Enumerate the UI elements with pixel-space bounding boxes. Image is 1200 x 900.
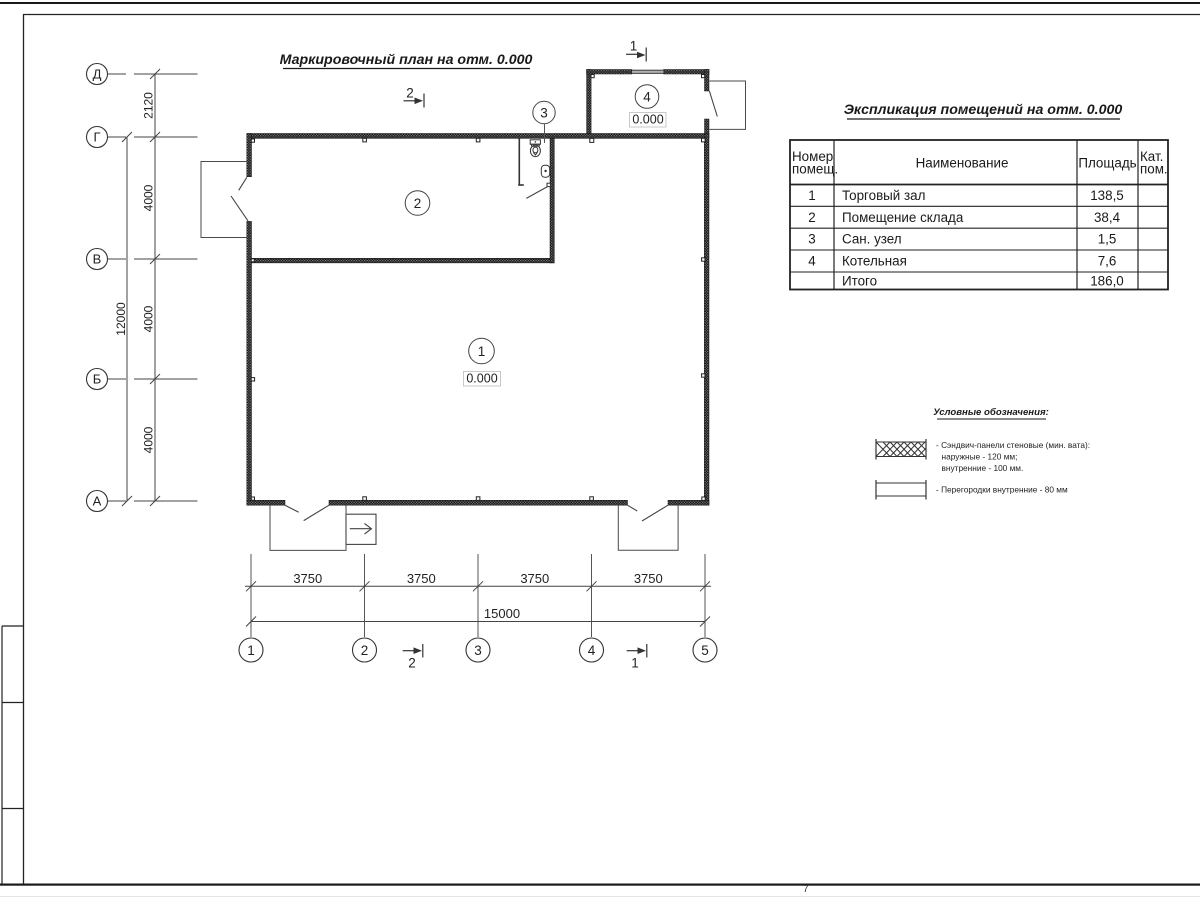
svg-text:3: 3 xyxy=(474,643,482,658)
svg-text:Торговый зал: Торговый зал xyxy=(842,188,925,203)
svg-text:1: 1 xyxy=(808,188,815,203)
svg-text:7: 7 xyxy=(803,884,809,895)
svg-text:2120: 2120 xyxy=(142,92,156,119)
svg-text:5: 5 xyxy=(701,643,709,658)
svg-text:2: 2 xyxy=(414,196,422,211)
svg-text:1: 1 xyxy=(630,39,638,54)
svg-text:1: 1 xyxy=(478,344,486,359)
svg-text:1: 1 xyxy=(247,643,255,658)
svg-text:Маркировочный план на отм. 0.0: Маркировочный план на отм. 0.000 xyxy=(280,52,533,68)
svg-text:4: 4 xyxy=(643,89,651,104)
svg-text:4: 4 xyxy=(808,254,816,269)
svg-text:Экспликация помещений на отм.: Экспликация помещений на отм. 0.000 xyxy=(844,102,1123,118)
svg-text:0.000: 0.000 xyxy=(632,113,663,127)
svg-text:3: 3 xyxy=(808,232,815,247)
svg-text:3750: 3750 xyxy=(520,571,549,586)
svg-text:3750: 3750 xyxy=(293,571,322,586)
svg-text:пом.: пом. xyxy=(1140,162,1168,177)
svg-text:4000: 4000 xyxy=(142,426,156,453)
svg-text:2: 2 xyxy=(406,86,414,101)
svg-text:2: 2 xyxy=(361,643,369,658)
svg-text:2: 2 xyxy=(408,656,416,671)
svg-text:наружные - 120 мм;: наружные - 120 мм; xyxy=(942,452,1018,462)
svg-text:1,5: 1,5 xyxy=(1098,232,1117,247)
svg-text:138,5: 138,5 xyxy=(1090,188,1124,203)
svg-text:38,4: 38,4 xyxy=(1094,210,1121,225)
svg-text:Д: Д xyxy=(93,67,102,82)
svg-text:Итого: Итого xyxy=(842,273,877,288)
svg-text:4: 4 xyxy=(588,643,596,658)
svg-text:12000: 12000 xyxy=(114,302,128,336)
svg-text:2: 2 xyxy=(808,210,815,225)
svg-text:Площадь: Площадь xyxy=(1078,156,1136,171)
svg-text:помещ.: помещ. xyxy=(792,162,838,177)
svg-text:- Перегородки внутренние - 80: - Перегородки внутренние - 80 мм xyxy=(936,485,1068,495)
svg-text:7,6: 7,6 xyxy=(1098,254,1117,269)
svg-text:3750: 3750 xyxy=(634,571,663,586)
svg-text:186,0: 186,0 xyxy=(1090,273,1124,288)
svg-text:4000: 4000 xyxy=(142,305,156,332)
svg-text:Сан. узел: Сан. узел xyxy=(842,232,902,247)
svg-text:- Сэндвич-панели стеновые (мин: - Сэндвич-панели стеновые (мин. вата): xyxy=(936,440,1090,450)
svg-text:0.000: 0.000 xyxy=(466,372,497,386)
svg-text:Котельная: Котельная xyxy=(842,254,907,269)
svg-text:1: 1 xyxy=(631,656,639,671)
svg-text:Условные обозначения:: Условные обозначения: xyxy=(933,407,1049,418)
svg-text:4000: 4000 xyxy=(142,184,156,211)
svg-text:В: В xyxy=(93,252,102,267)
svg-text:Наименование: Наименование xyxy=(916,156,1009,171)
svg-text:3750: 3750 xyxy=(407,571,436,586)
svg-text:Г: Г xyxy=(93,130,100,145)
svg-text:3: 3 xyxy=(540,105,548,120)
svg-text:Помещение склада: Помещение склада xyxy=(842,210,964,225)
svg-text:внутренние - 100 мм.: внутренние - 100 мм. xyxy=(942,463,1024,473)
svg-text:Б: Б xyxy=(93,372,102,387)
svg-text:А: А xyxy=(93,494,102,509)
svg-text:15000: 15000 xyxy=(484,606,520,621)
